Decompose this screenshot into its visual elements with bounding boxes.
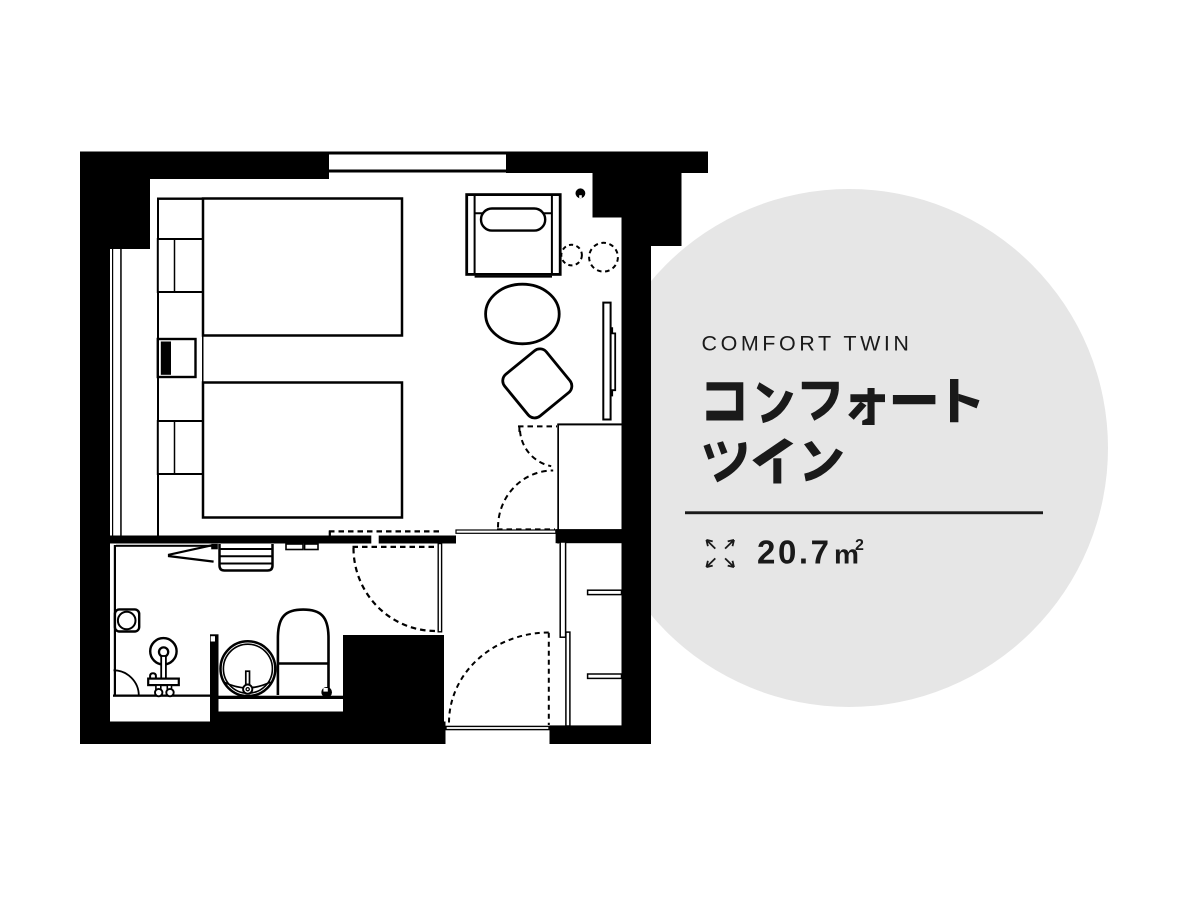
svg-text:20.7: 20.7 [757, 534, 832, 571]
svg-text:2: 2 [855, 537, 864, 554]
svg-text:COMFORT TWIN: COMFORT TWIN [702, 332, 913, 356]
